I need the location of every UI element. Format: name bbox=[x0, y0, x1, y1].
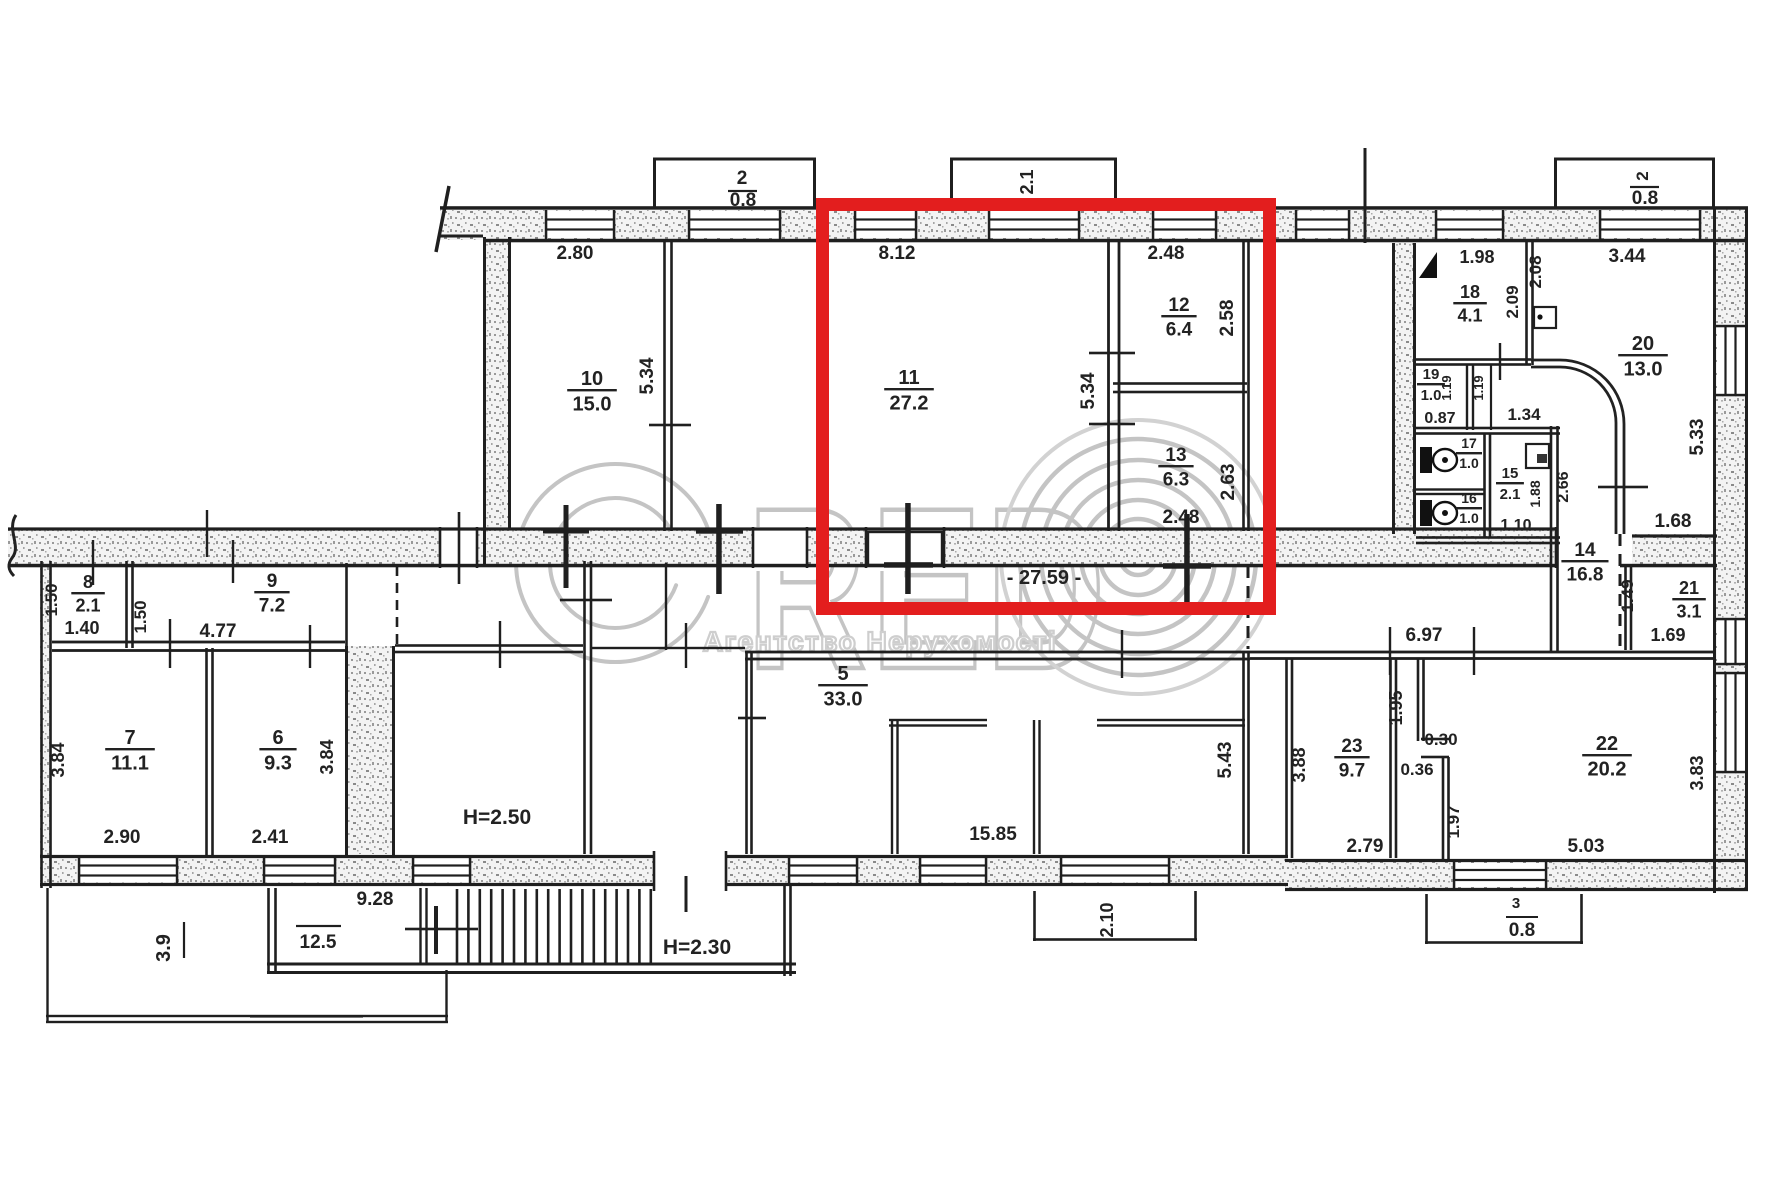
svg-text:15.0: 15.0 bbox=[573, 394, 612, 416]
svg-text:3.44: 3.44 bbox=[1609, 246, 1646, 267]
svg-text:1.95: 1.95 bbox=[1386, 690, 1406, 725]
svg-text:2.48: 2.48 bbox=[1163, 507, 1200, 528]
svg-text:13.0: 13.0 bbox=[1624, 359, 1663, 381]
svg-text:14: 14 bbox=[1574, 540, 1596, 561]
svg-text:1.50: 1.50 bbox=[42, 583, 61, 616]
svg-text:5.34: 5.34 bbox=[637, 357, 658, 394]
svg-text:1.68: 1.68 bbox=[1655, 511, 1692, 532]
svg-text:1.69: 1.69 bbox=[1650, 625, 1685, 645]
svg-text:21: 21 bbox=[1679, 578, 1699, 598]
svg-text:15: 15 bbox=[1502, 465, 1519, 482]
svg-text:1.10: 1.10 bbox=[1500, 517, 1531, 534]
svg-text:1.40: 1.40 bbox=[64, 618, 99, 638]
svg-text:27.2: 27.2 bbox=[890, 393, 929, 415]
svg-text:9.3: 9.3 bbox=[264, 753, 292, 775]
svg-text:2: 2 bbox=[1633, 171, 1652, 180]
svg-text:8.12: 8.12 bbox=[879, 243, 916, 264]
svg-text:1.19: 1.19 bbox=[1439, 375, 1454, 400]
svg-text:0.8: 0.8 bbox=[1632, 188, 1658, 209]
svg-text:RED: RED bbox=[747, 461, 1110, 717]
svg-text:5.03: 5.03 bbox=[1568, 836, 1605, 857]
svg-text:3.88: 3.88 bbox=[1289, 747, 1309, 782]
svg-text:3.1: 3.1 bbox=[1676, 602, 1701, 622]
svg-text:2.58: 2.58 bbox=[1217, 300, 1238, 337]
svg-text:12: 12 bbox=[1168, 295, 1189, 316]
svg-text:9.7: 9.7 bbox=[1339, 761, 1365, 782]
svg-text:5.34: 5.34 bbox=[1078, 372, 1099, 409]
svg-text:- 27.59 -: - 27.59 - bbox=[1007, 567, 1081, 589]
svg-text:33.0: 33.0 bbox=[824, 689, 863, 711]
svg-text:2.1: 2.1 bbox=[1500, 486, 1521, 503]
svg-text:7.2: 7.2 bbox=[259, 596, 285, 617]
svg-text:1.0: 1.0 bbox=[1459, 510, 1479, 526]
svg-text:5.43: 5.43 bbox=[1215, 742, 1236, 779]
svg-text:20.2: 20.2 bbox=[1588, 759, 1627, 781]
svg-text:0.30: 0.30 bbox=[1424, 730, 1457, 749]
svg-text:0.8: 0.8 bbox=[730, 190, 756, 211]
svg-text:18: 18 bbox=[1460, 282, 1480, 302]
svg-text:23: 23 bbox=[1341, 736, 1362, 757]
svg-text:16: 16 bbox=[1461, 490, 1477, 506]
svg-text:3.9: 3.9 bbox=[153, 934, 175, 962]
svg-text:H=2.50: H=2.50 bbox=[463, 806, 531, 829]
svg-text:2.41: 2.41 bbox=[252, 827, 289, 848]
svg-text:8: 8 bbox=[83, 572, 93, 592]
svg-text:4.77: 4.77 bbox=[200, 621, 237, 642]
svg-text:H=2.30: H=2.30 bbox=[663, 936, 731, 959]
svg-text:1.97: 1.97 bbox=[1444, 805, 1463, 838]
svg-text:15.85: 15.85 bbox=[969, 824, 1017, 845]
svg-text:3.84: 3.84 bbox=[317, 739, 337, 774]
svg-text:6.3: 6.3 bbox=[1163, 470, 1189, 491]
svg-text:1.50: 1.50 bbox=[131, 600, 150, 633]
svg-text:4.1: 4.1 bbox=[1457, 306, 1482, 326]
svg-text:2.66: 2.66 bbox=[1555, 471, 1572, 502]
svg-text:5: 5 bbox=[837, 663, 848, 685]
svg-text:10: 10 bbox=[581, 368, 603, 390]
svg-text:5.33: 5.33 bbox=[1687, 419, 1708, 456]
svg-text:17: 17 bbox=[1461, 435, 1477, 451]
svg-text:11: 11 bbox=[898, 367, 919, 389]
svg-text:3.84: 3.84 bbox=[48, 742, 68, 777]
svg-text:2.09: 2.09 bbox=[1503, 285, 1522, 318]
svg-text:2: 2 bbox=[737, 168, 748, 189]
svg-text:3: 3 bbox=[1512, 895, 1520, 912]
svg-text:16.8: 16.8 bbox=[1567, 565, 1604, 586]
svg-text:9.28: 9.28 bbox=[357, 889, 394, 910]
svg-text:3.83: 3.83 bbox=[1687, 755, 1707, 790]
svg-text:2.10: 2.10 bbox=[1097, 902, 1117, 937]
svg-text:1.34: 1.34 bbox=[1507, 405, 1541, 424]
svg-text:7: 7 bbox=[124, 727, 135, 749]
svg-text:19: 19 bbox=[1423, 366, 1440, 383]
svg-text:1.88: 1.88 bbox=[1527, 480, 1543, 507]
svg-text:1.0: 1.0 bbox=[1459, 455, 1479, 471]
svg-text:6.4: 6.4 bbox=[1166, 320, 1193, 341]
svg-text:2.08: 2.08 bbox=[1526, 255, 1545, 288]
svg-text:9: 9 bbox=[267, 571, 278, 592]
svg-text:2.80: 2.80 bbox=[557, 243, 594, 264]
svg-text:0.8: 0.8 bbox=[1509, 920, 1535, 941]
svg-text:0.36: 0.36 bbox=[1400, 760, 1433, 779]
svg-text:6: 6 bbox=[272, 727, 283, 749]
svg-text:20: 20 bbox=[1632, 333, 1654, 355]
svg-text:12.5: 12.5 bbox=[300, 932, 337, 953]
svg-text:2.1: 2.1 bbox=[75, 596, 100, 616]
svg-text:1.49: 1.49 bbox=[1618, 579, 1637, 612]
svg-text:6.97: 6.97 bbox=[1406, 625, 1443, 646]
svg-text:2.63: 2.63 bbox=[1218, 464, 1239, 501]
svg-text:0.87: 0.87 bbox=[1424, 410, 1455, 427]
svg-text:22: 22 bbox=[1596, 733, 1618, 755]
svg-text:2.48: 2.48 bbox=[1148, 243, 1185, 264]
svg-text:13: 13 bbox=[1165, 445, 1186, 466]
svg-text:2.1: 2.1 bbox=[1017, 169, 1037, 194]
svg-text:1.19: 1.19 bbox=[1471, 375, 1486, 400]
svg-text:2.90: 2.90 bbox=[104, 827, 141, 848]
svg-text:11.1: 11.1 bbox=[111, 753, 149, 775]
svg-text:2.79: 2.79 bbox=[1347, 836, 1384, 857]
svg-text:1.98: 1.98 bbox=[1459, 247, 1494, 267]
